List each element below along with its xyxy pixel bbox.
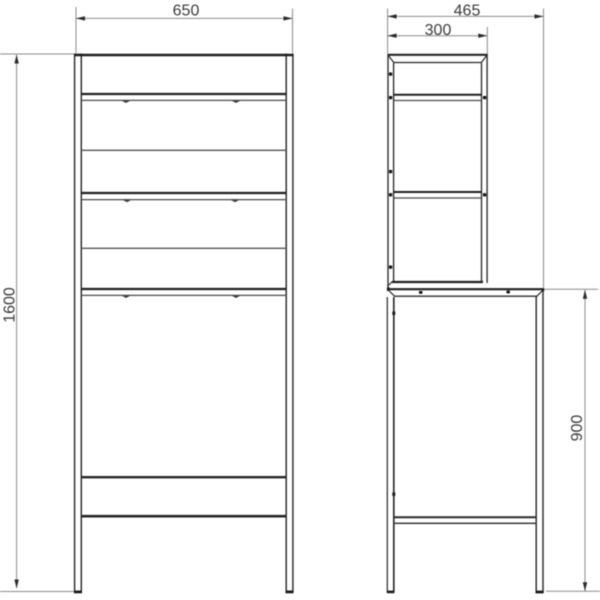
- svg-text:1600: 1600: [2, 287, 19, 323]
- svg-text:465: 465: [454, 3, 481, 20]
- svg-text:650: 650: [173, 3, 200, 20]
- svg-text:300: 300: [425, 22, 452, 39]
- svg-text:900: 900: [569, 415, 586, 442]
